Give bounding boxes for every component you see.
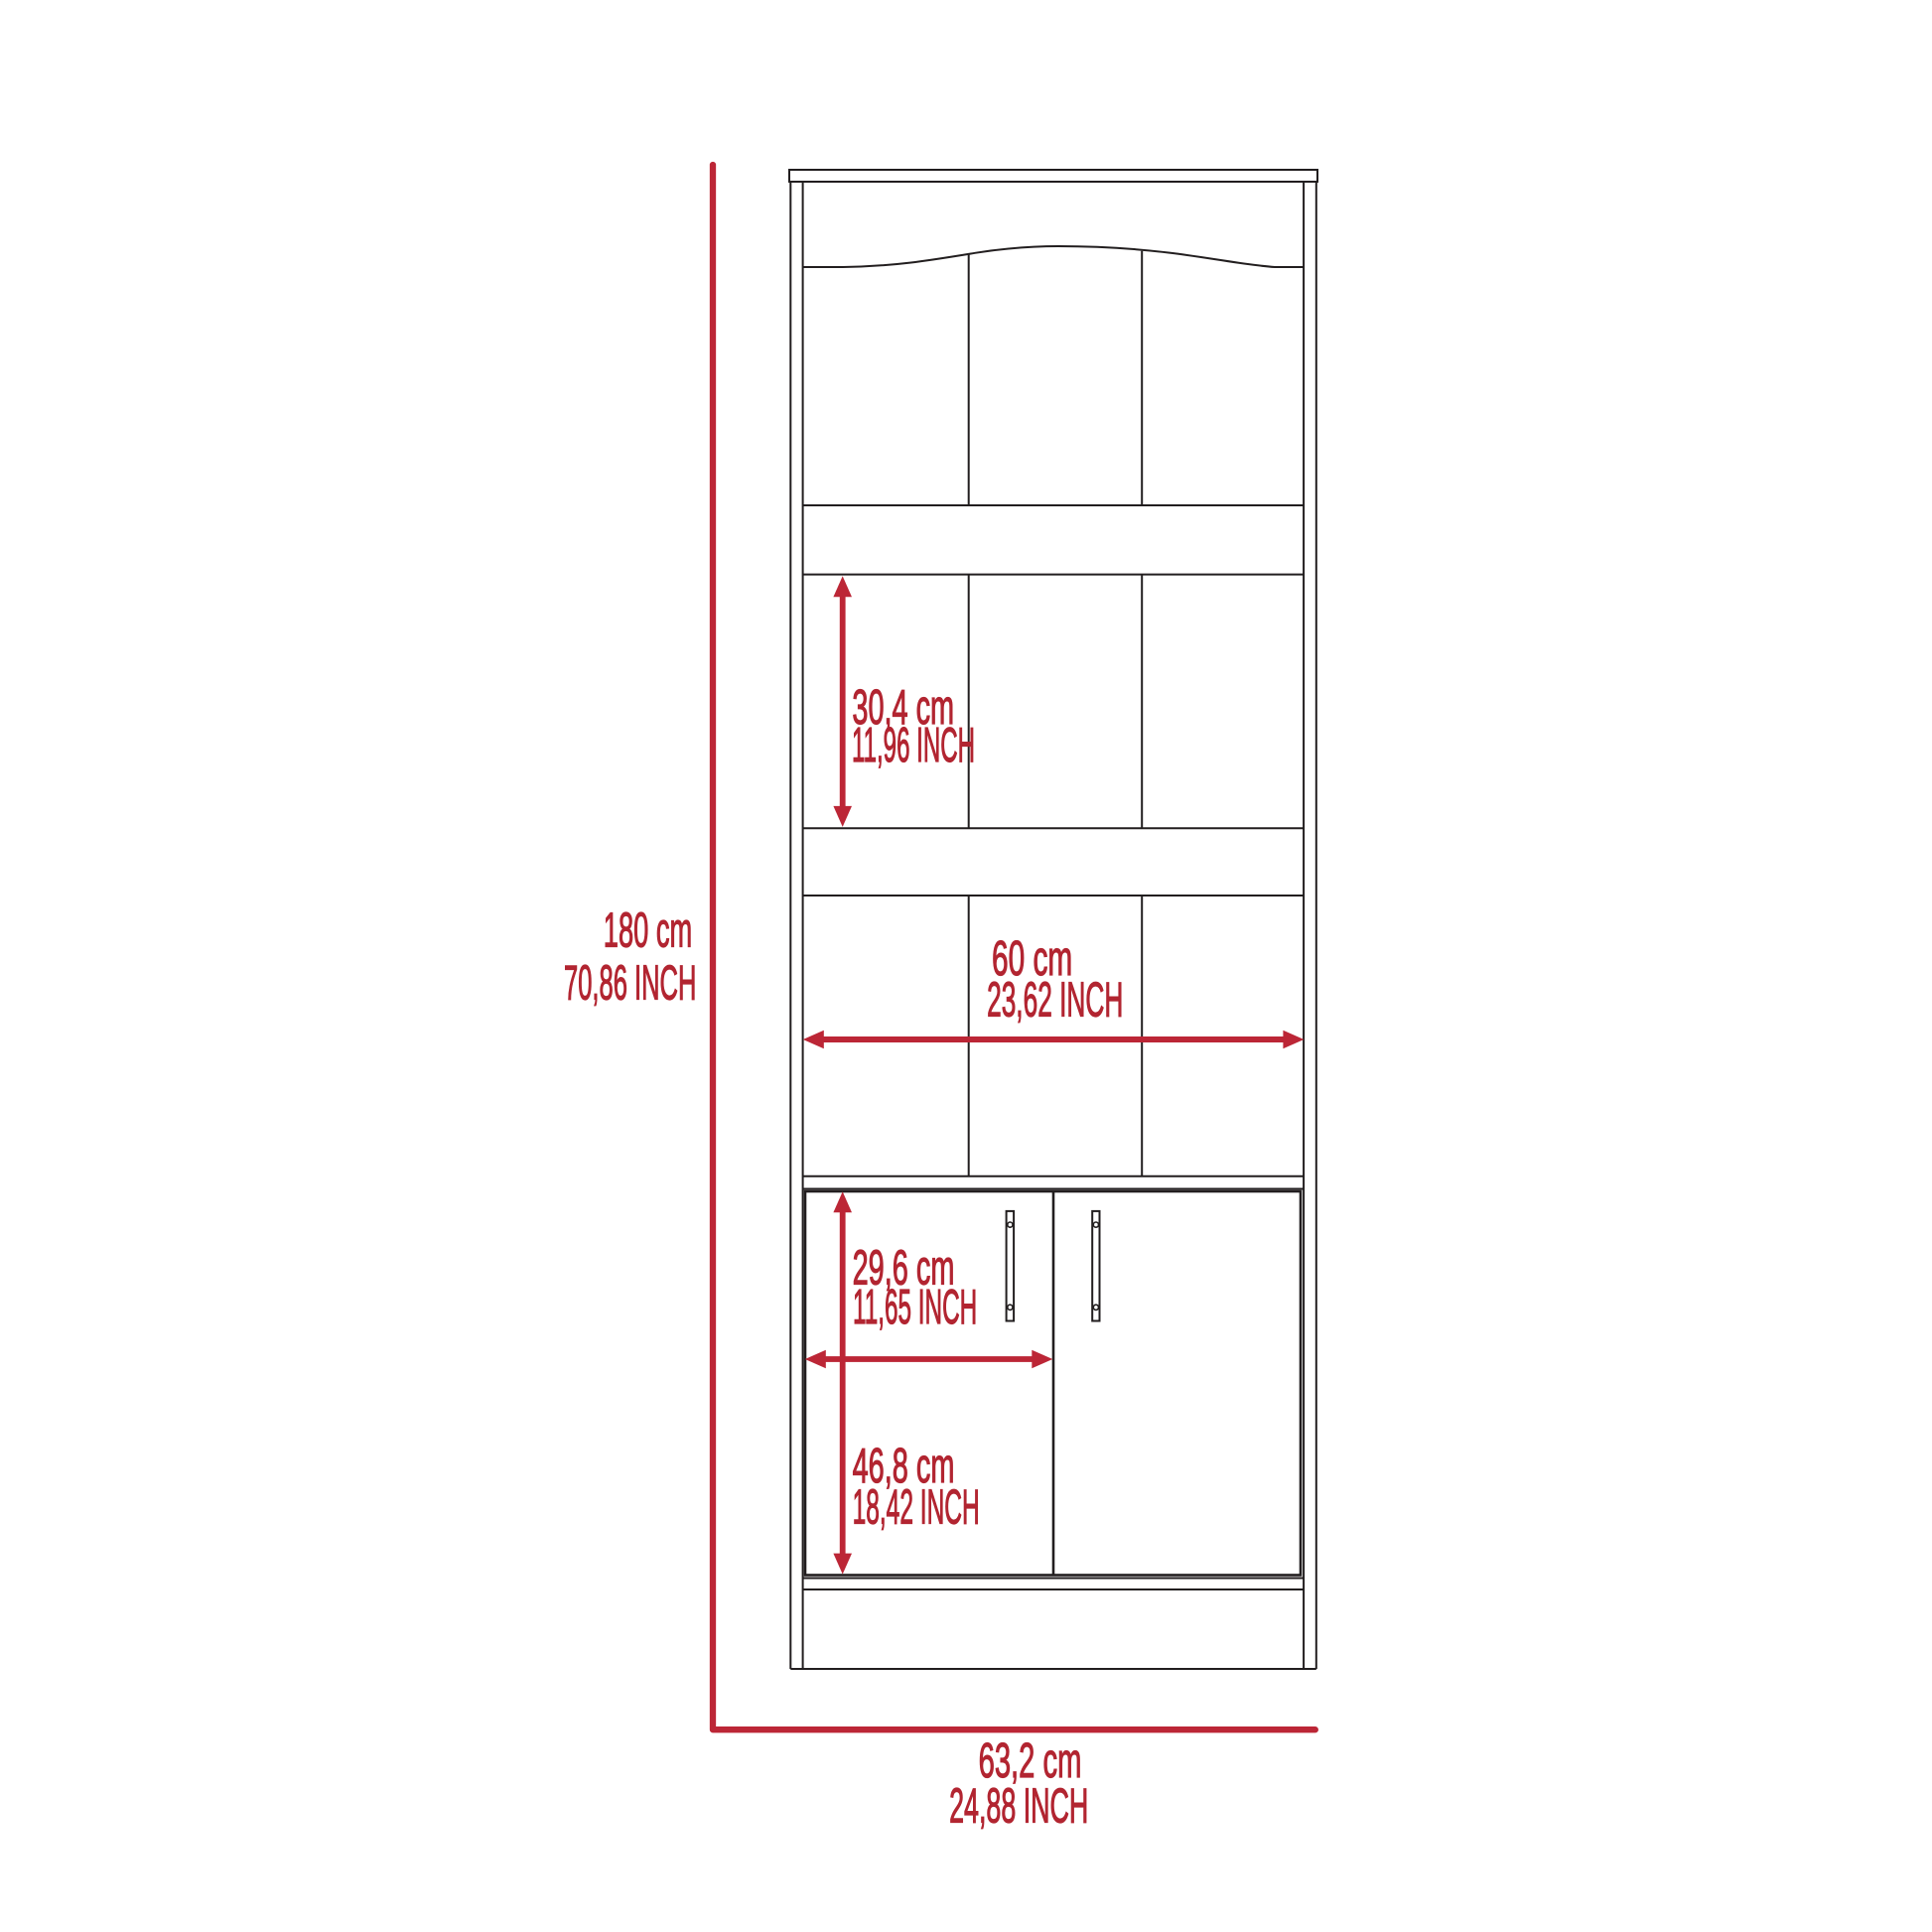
svg-text:11,96 INCH: 11,96 INCH [852, 719, 975, 772]
svg-text:70,86 INCH: 70,86 INCH [564, 957, 696, 1011]
svg-text:24,88 INCH: 24,88 INCH [949, 1780, 1088, 1834]
svg-text:23,62 INCH: 23,62 INCH [987, 974, 1123, 1028]
svg-text:18,42 INCH: 18,42 INCH [853, 1481, 980, 1535]
svg-text:11,65 INCH: 11,65 INCH [853, 1281, 977, 1334]
svg-text:180 cm: 180 cm [604, 904, 692, 958]
